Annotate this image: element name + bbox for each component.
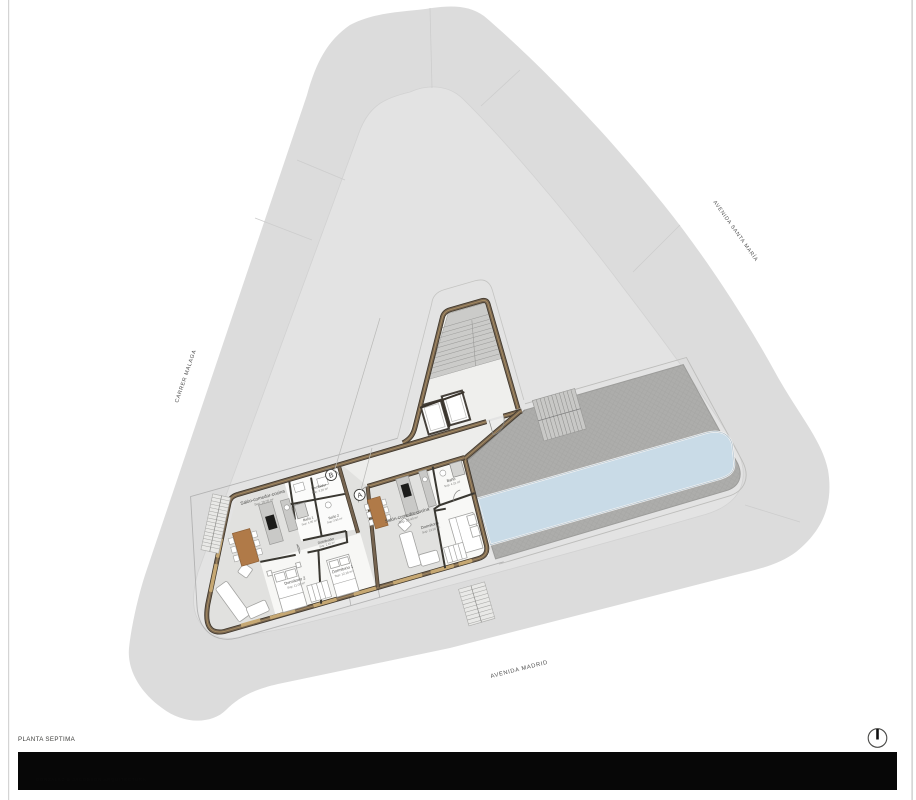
svg-text:GONZALEZ & JACOBSON ARQUITECTU: GONZALEZ & JACOBSON ARQUITECTURA bbox=[36, 777, 146, 782]
svg-text:PLANTA SEPTIMA: PLANTA SEPTIMA bbox=[18, 736, 76, 743]
